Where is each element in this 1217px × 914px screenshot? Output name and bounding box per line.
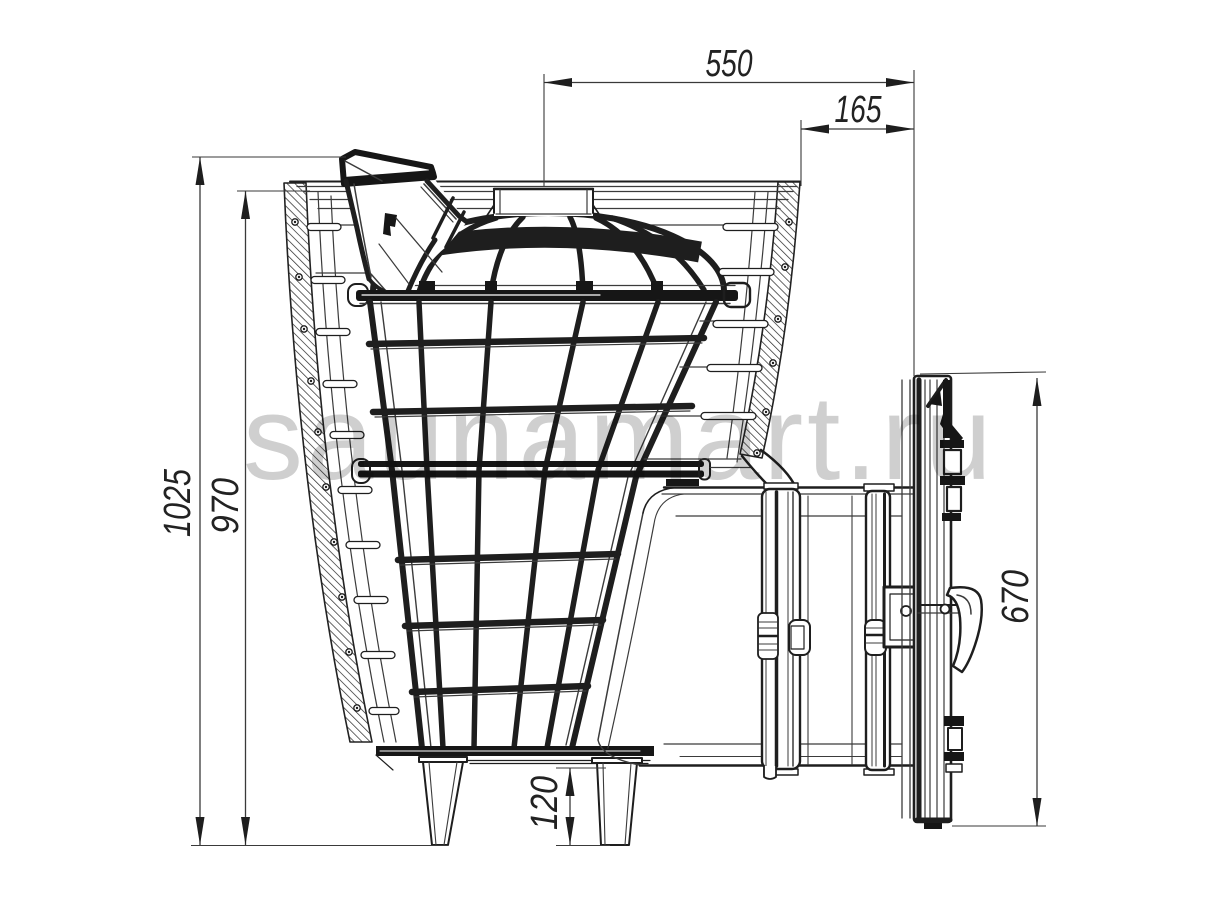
svg-text:970: 970: [205, 478, 247, 534]
svg-text:165: 165: [835, 89, 883, 131]
svg-text:550: 550: [706, 43, 753, 85]
svg-text:saunamart.ru: saunamart.ru: [243, 371, 996, 505]
svg-text:120: 120: [524, 776, 566, 830]
svg-text:670: 670: [995, 570, 1037, 624]
svg-text:1025: 1025: [157, 468, 199, 537]
